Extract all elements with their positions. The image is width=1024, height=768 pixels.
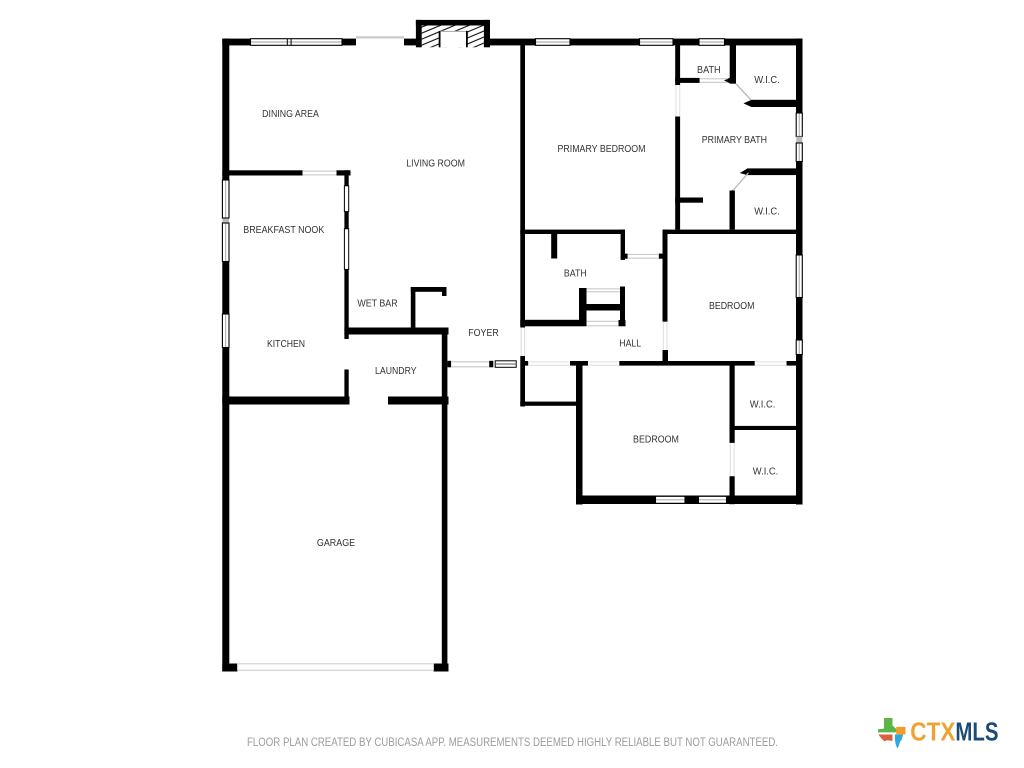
svg-text:FOYER: FOYER [468,328,499,339]
svg-text:MLS: MLS [955,719,998,747]
svg-text:KITCHEN: KITCHEN [267,339,305,350]
svg-text:DINING AREA: DINING AREA [262,109,319,120]
svg-text:BREAKFAST NOOK: BREAKFAST NOOK [243,225,324,236]
svg-text:W.I.C.: W.I.C. [750,399,776,410]
svg-text:W.I.C.: W.I.C. [754,75,780,86]
svg-text:GARAGE: GARAGE [317,538,356,549]
svg-text:WET BAR: WET BAR [357,298,397,309]
svg-text:W.I.C.: W.I.C. [753,466,778,477]
svg-text:W.I.C.: W.I.C. [754,207,780,218]
svg-text:BATH: BATH [697,65,721,76]
svg-text:BEDROOM: BEDROOM [633,434,679,445]
svg-text:PRIMARY BEDROOM: PRIMARY BEDROOM [557,144,645,155]
svg-text:FLOOR PLAN CREATED BY CUBICASA: FLOOR PLAN CREATED BY CUBICASA APP. MEAS… [247,735,778,749]
svg-text:LAUNDRY: LAUNDRY [375,366,417,377]
svg-text:BATH: BATH [564,268,587,279]
svg-text:BEDROOM: BEDROOM [709,301,755,312]
svg-text:PRIMARY BATH: PRIMARY BATH [702,135,767,146]
svg-text:CTX: CTX [910,719,955,747]
svg-text:LIVING ROOM: LIVING ROOM [406,158,465,169]
svg-text:HALL: HALL [619,338,641,349]
